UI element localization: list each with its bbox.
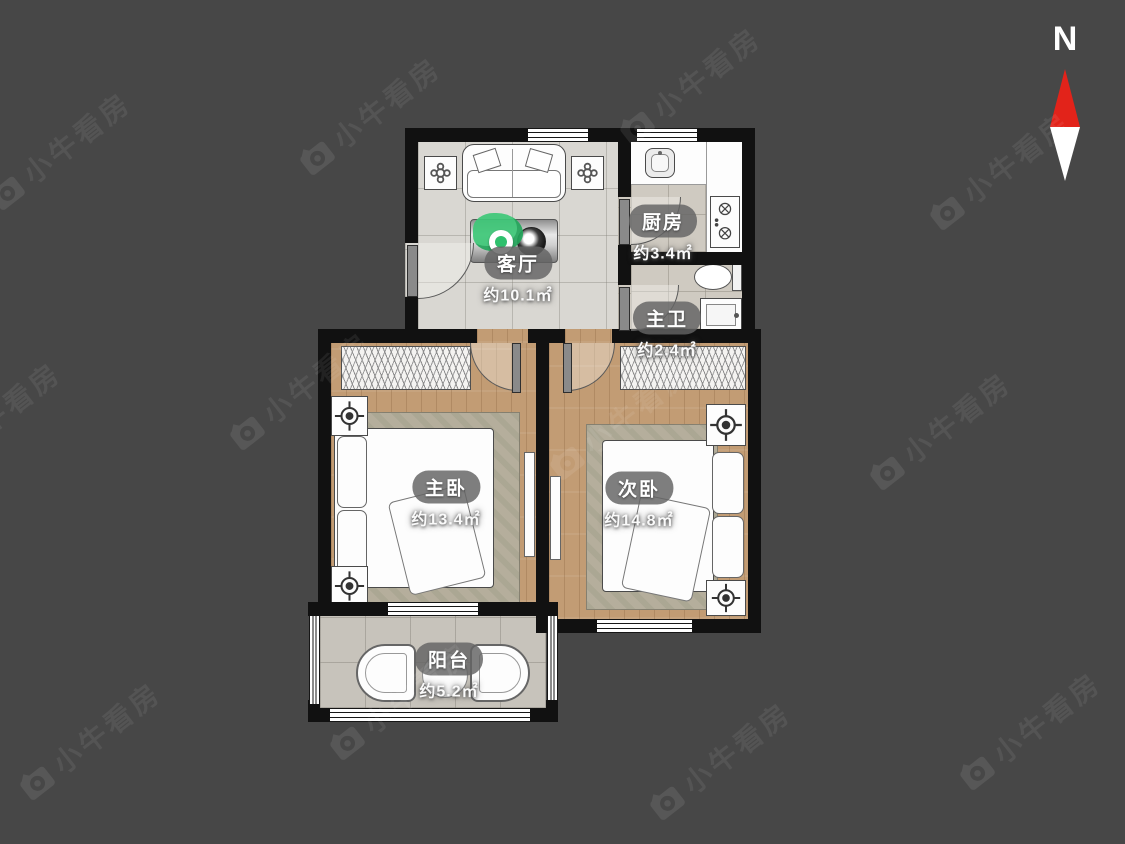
room-area: 约10.1㎡ <box>483 282 552 306</box>
wall <box>748 343 761 633</box>
floorplan: 客厅 约10.1㎡ 厨房 约3.4㎡ 主卫 约2.4㎡ 主卧 约13.4㎡ 次卧… <box>0 0 1125 844</box>
kitchen-label: 厨房 约3.4㎡ <box>629 205 697 264</box>
burners-icon <box>711 197 739 247</box>
wall <box>692 619 761 633</box>
balcony-left-window <box>309 616 320 704</box>
room-area: 约13.4㎡ <box>411 506 480 530</box>
master-door-leaf <box>512 343 521 393</box>
living-room-label: 客厅 约10.1㎡ <box>483 247 552 306</box>
wall <box>405 297 418 330</box>
room-name: 阳台 <box>415 643 483 676</box>
master-nightstand-top <box>331 396 368 436</box>
balcony-bottom-window <box>330 708 530 722</box>
master-pillow-1 <box>337 436 367 508</box>
room-area: 约14.8㎡ <box>604 507 673 531</box>
plant-icon <box>572 157 603 189</box>
wall <box>618 142 631 197</box>
balcony-label: 阳台 约5.2㎡ <box>415 643 483 702</box>
master-bedroom-label: 主卧 约13.4㎡ <box>411 471 480 530</box>
room-area: 约2.4㎡ <box>633 337 701 361</box>
room-name: 主卧 <box>412 471 480 504</box>
second-wall-mirror <box>550 476 561 560</box>
master-door-threshold <box>477 329 528 343</box>
sofa <box>462 144 566 202</box>
crosshair-icon <box>332 567 367 605</box>
crosshair-icon <box>707 405 745 445</box>
room-area: 约5.2㎡ <box>415 678 483 702</box>
second-pillow-1 <box>712 452 744 514</box>
wall <box>308 602 388 616</box>
second-nightstand-bottom <box>706 580 746 616</box>
balcony-right-window <box>547 616 558 700</box>
master-wall-mirror <box>524 452 535 557</box>
master-nightstand-bottom <box>331 566 368 606</box>
north-arrow-icon <box>1047 67 1083 183</box>
stove <box>710 196 740 248</box>
plant-icon <box>425 157 456 189</box>
north-compass: N <box>1047 20 1083 183</box>
bath-door-leaf <box>619 287 630 331</box>
room-name: 次卧 <box>605 472 673 505</box>
north-label: N <box>1047 20 1083 59</box>
room-area: 约3.4㎡ <box>629 240 697 264</box>
master-wardrobe <box>341 346 471 390</box>
wall <box>536 619 597 633</box>
floorplan-page: { "background": "#474747", "compass": { … <box>0 0 1125 844</box>
bath-label: 主卫 约2.4㎡ <box>633 302 701 361</box>
wall <box>528 329 565 343</box>
room-name: 主卫 <box>633 302 701 335</box>
kitchen-sink <box>645 148 675 178</box>
wall <box>318 343 331 602</box>
second-nightstand-top <box>706 404 746 446</box>
wall <box>742 128 755 343</box>
wall <box>546 700 558 708</box>
wall <box>478 602 558 616</box>
room-name: 客厅 <box>484 247 552 280</box>
wall <box>318 329 477 343</box>
living-window <box>528 128 588 142</box>
kitchen-window <box>637 128 697 142</box>
crosshair-icon <box>332 397 367 435</box>
second-door-leaf <box>563 343 572 393</box>
toilet <box>694 262 742 292</box>
side-table-left <box>424 156 457 190</box>
wall <box>536 343 549 633</box>
crosshair-icon <box>707 581 745 615</box>
side-table-right <box>571 156 604 190</box>
wall <box>405 142 418 243</box>
second-bedroom-label: 次卧 约14.8㎡ <box>604 472 673 531</box>
second-pillow-2 <box>712 516 744 578</box>
entry-door-leaf <box>407 245 418 297</box>
bath-vanity-sink <box>700 298 742 332</box>
balcony-chair-left <box>356 644 416 702</box>
second-door-threshold <box>565 329 612 343</box>
room-name: 厨房 <box>629 205 697 238</box>
second-bedroom-window <box>597 619 692 633</box>
master-balcony-window <box>388 602 478 616</box>
